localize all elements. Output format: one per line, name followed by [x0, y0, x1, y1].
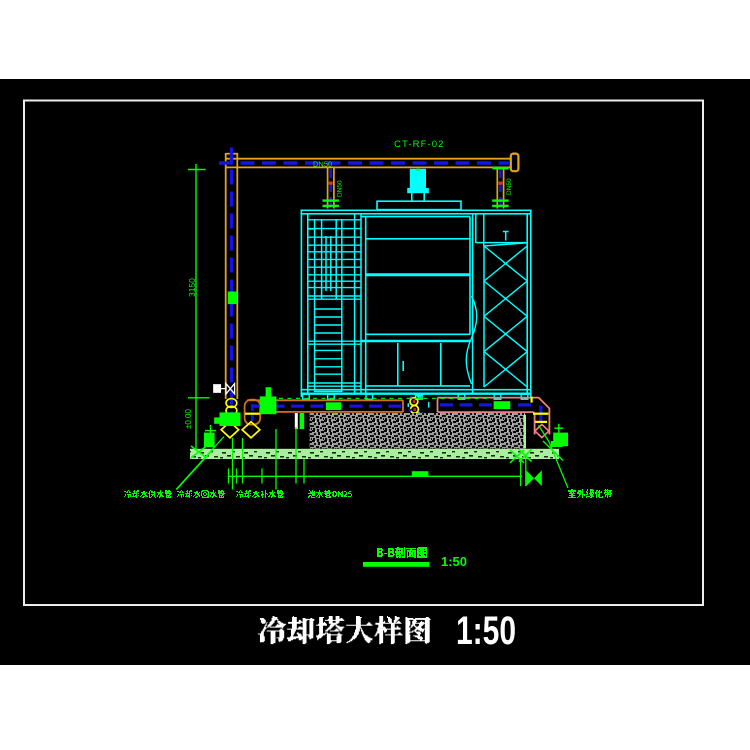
svg-text:1:50: 1:50: [456, 609, 516, 653]
svg-text:1:50: 1:50: [441, 554, 467, 569]
svg-text:DN50: DN50: [313, 160, 332, 169]
svg-text:DN50: DN50: [506, 178, 513, 195]
svg-text:CT-RF-02: CT-RF-02: [394, 139, 445, 150]
svg-text:DN50: DN50: [337, 180, 344, 197]
svg-text:3150: 3150: [187, 278, 197, 297]
svg-text:±0.00: ±0.00: [184, 408, 193, 429]
